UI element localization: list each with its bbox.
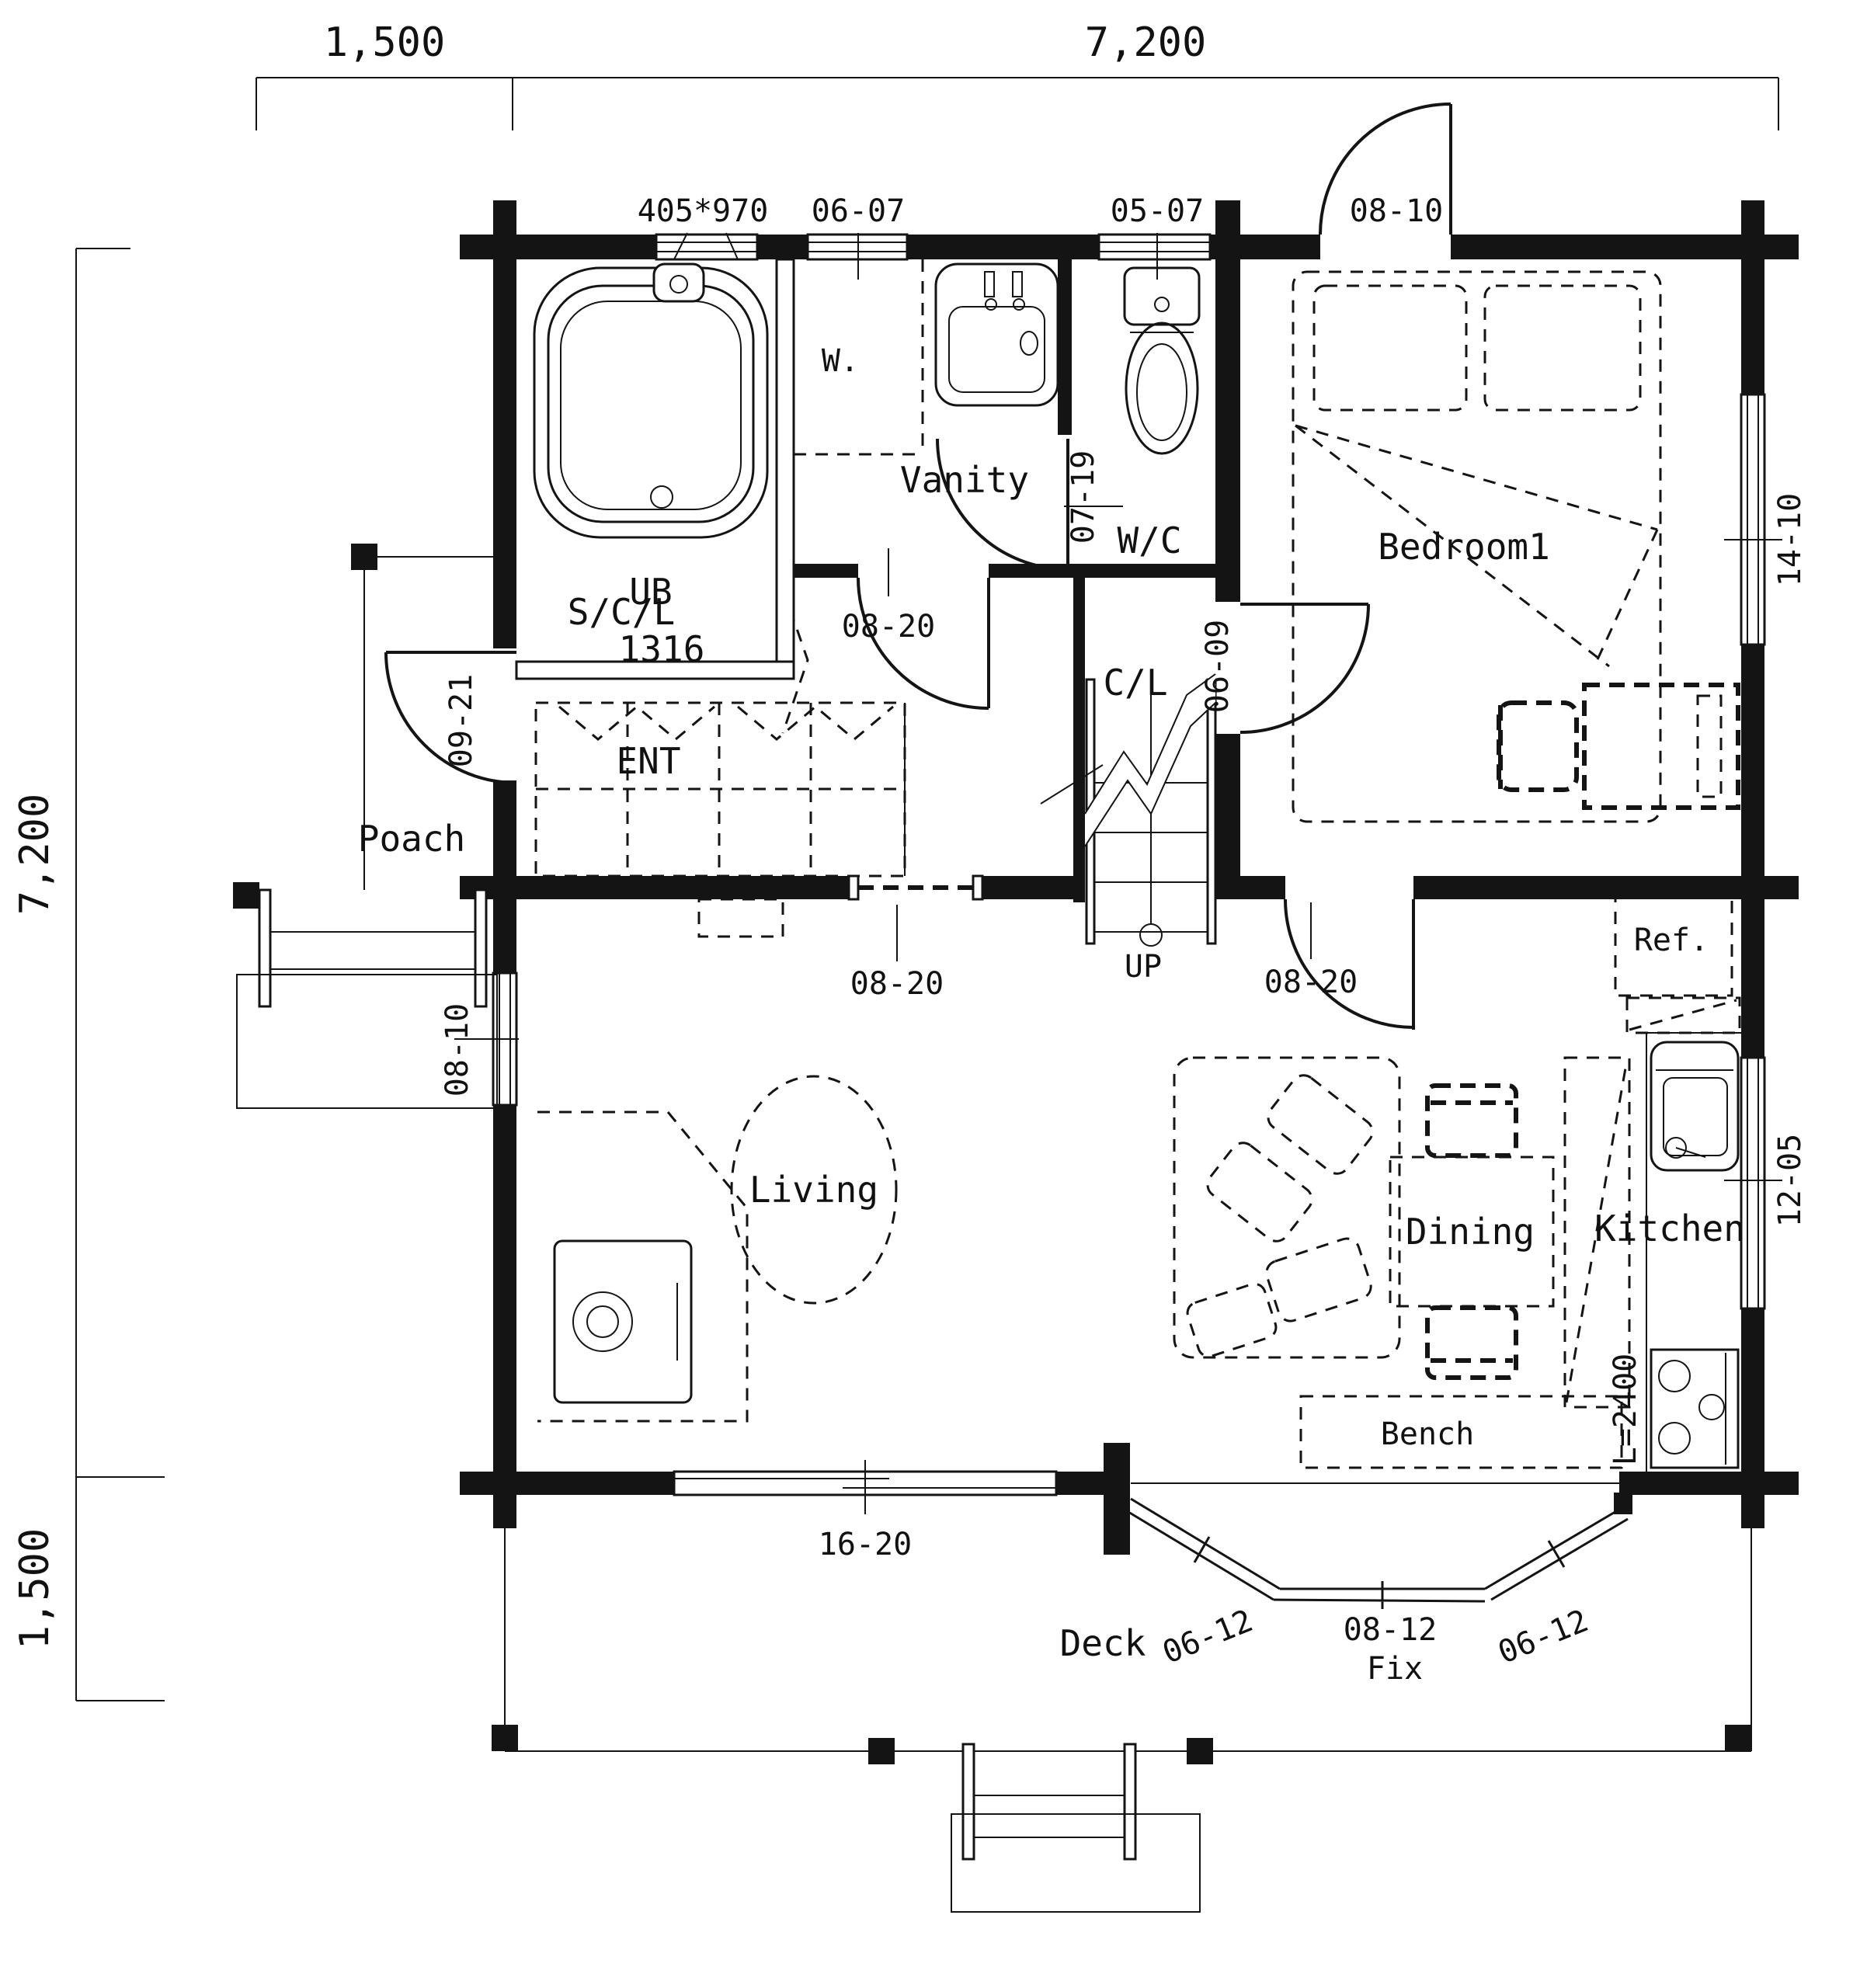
room-labels: UB 1316 W. Vanity W/C S/C/L ENT C/L Poac… [358, 343, 1745, 1664]
kitchen-sink-icon [1651, 1042, 1738, 1170]
label-08-10-top: 08-10 [1350, 193, 1443, 229]
label-wc: W/C [1117, 520, 1181, 561]
label-06-09: 06-09 [1200, 620, 1236, 713]
label-08-10-left: 08-10 [440, 1003, 475, 1097]
label-12-05: 12-05 [1772, 1134, 1808, 1227]
label-08-12: 08-12 [1344, 1612, 1437, 1648]
label-dining: Dining [1406, 1211, 1535, 1253]
label-08-20-right: 08-20 [1264, 964, 1358, 1000]
desk-icon [1499, 685, 1738, 808]
label-cl: C/L [1103, 662, 1167, 704]
label-07-19: 07-19 [1066, 450, 1101, 544]
deck-steps-icon [951, 1744, 1200, 1912]
label-14-10: 14-10 [1772, 493, 1808, 586]
label-16-20: 16-20 [819, 1527, 912, 1562]
label-05-07: 05-07 [1111, 193, 1204, 229]
label-06-07: 06-07 [812, 193, 905, 229]
label-09-21: 09-21 [443, 674, 479, 767]
ub-wall-right [777, 259, 794, 679]
dim-left-top: 7,200 [12, 794, 58, 916]
label-06-12-right: 06-12 [1493, 1603, 1594, 1671]
dim-top-left: 1,500 [324, 19, 446, 66]
bathtub-icon [534, 264, 767, 537]
label-06-12-left: 06-12 [1158, 1603, 1258, 1671]
label-up: UP [1125, 949, 1162, 985]
toilet-icon [1125, 268, 1199, 454]
label-washer: W. [822, 343, 859, 379]
bath-window [656, 233, 757, 259]
label-ent: ENT [616, 740, 680, 782]
label-08-20-upper: 08-20 [842, 609, 935, 645]
floor-plan: 1,500 7,200 7,200 1,500 [0, 0, 1867, 1988]
dim-left-bottom: 1,500 [12, 1528, 58, 1650]
label-405x970: 405*970 [638, 193, 769, 229]
label-vanity: Vanity [900, 459, 1029, 501]
label-l2400: L=2400 [1608, 1354, 1643, 1466]
label-ub-size: 1316 [619, 628, 705, 670]
label-bedroom: Bedroom1 [1378, 526, 1550, 568]
label-deck: Deck [1060, 1622, 1146, 1664]
label-bench: Bench [1381, 1416, 1474, 1452]
kitchen-fixtures [1565, 887, 1741, 1472]
label-08-20-left: 08-20 [850, 966, 944, 1002]
ent-grid [536, 703, 905, 876]
wood-stove-icon [537, 1112, 747, 1421]
vanity-sink-icon [936, 264, 1058, 405]
label-kitchen: Kitchen [1594, 1208, 1745, 1249]
stove-icon [1651, 1350, 1738, 1468]
label-living: Living [749, 1169, 878, 1211]
dining-chair-top-icon [1427, 1086, 1516, 1156]
stairs [1041, 674, 1215, 946]
entrance-area [536, 674, 1215, 946]
label-poach: Poach [358, 818, 465, 860]
walls [460, 200, 1799, 1555]
deck [492, 1528, 1751, 1912]
label-ref: Ref. [1634, 923, 1709, 958]
label-fix: Fix [1367, 1651, 1423, 1687]
dining-chair-bottom-icon [1427, 1308, 1516, 1378]
label-scl: S/C/L [568, 591, 675, 633]
dim-top-right: 7,200 [1085, 19, 1207, 66]
sofa-icon [1174, 1058, 1399, 1359]
